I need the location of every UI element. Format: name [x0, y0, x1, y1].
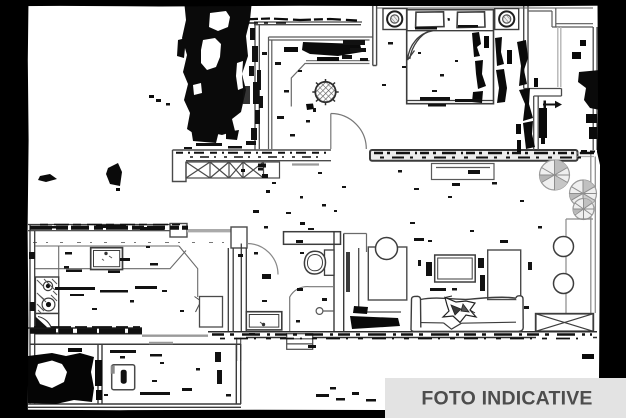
- svg-text:FOTO INDICATIVE: FOTO INDICATIVE: [421, 388, 592, 410]
